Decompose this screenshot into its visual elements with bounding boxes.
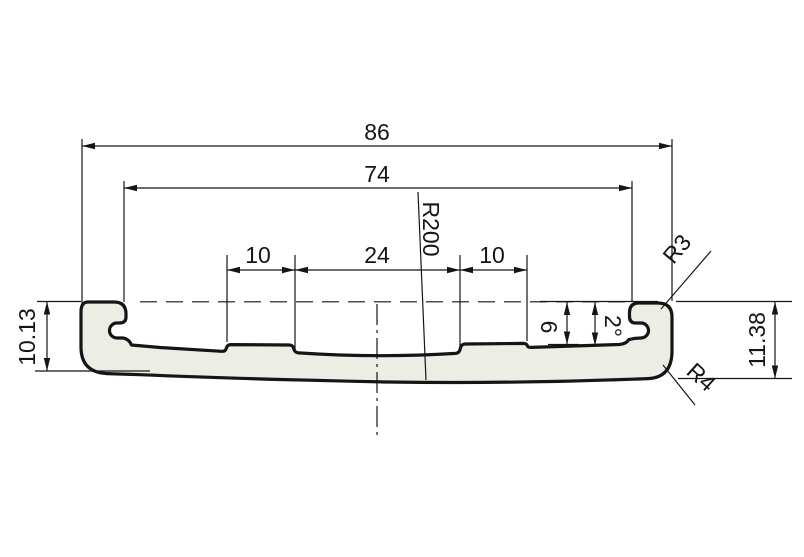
dim-1013-label: 10.13: [14, 308, 40, 366]
r3-label: R3: [657, 229, 696, 268]
drawing-sheet: 86 74 10 24 10 R200 R3 R4 10.13 11.38: [0, 0, 804, 557]
leader-surface-radius: R200: [418, 192, 444, 380]
dim-86-label: 86: [364, 119, 390, 145]
dim-overall-width: 86: [82, 119, 672, 307]
leader-hook-bottom-radius: R4: [663, 358, 721, 405]
r200-label: R200: [418, 202, 444, 257]
dim-74-label: 74: [364, 161, 390, 187]
dim-surface-angle: 2°: [581, 302, 626, 346]
dim-top-steps: 10 24 10: [227, 242, 527, 352]
leader-hook-corner-radius: R3: [657, 229, 711, 309]
dim-6-label: 6: [536, 321, 562, 334]
cad-drawing: 86 74 10 24 10 R200 R3 R4 10.13 11.38: [0, 0, 804, 557]
dim-10-right-label: 10: [479, 242, 505, 268]
dim-inner-width: 74: [124, 161, 632, 302]
dim-1138-label: 11.38: [744, 312, 770, 368]
dim-10-left-label: 10: [245, 242, 271, 268]
dim-steps-lines: [227, 255, 527, 352]
dim-2deg-label: 2°: [600, 315, 626, 337]
r4-label: R4: [682, 358, 721, 397]
dim-24-label: 24: [364, 242, 390, 268]
